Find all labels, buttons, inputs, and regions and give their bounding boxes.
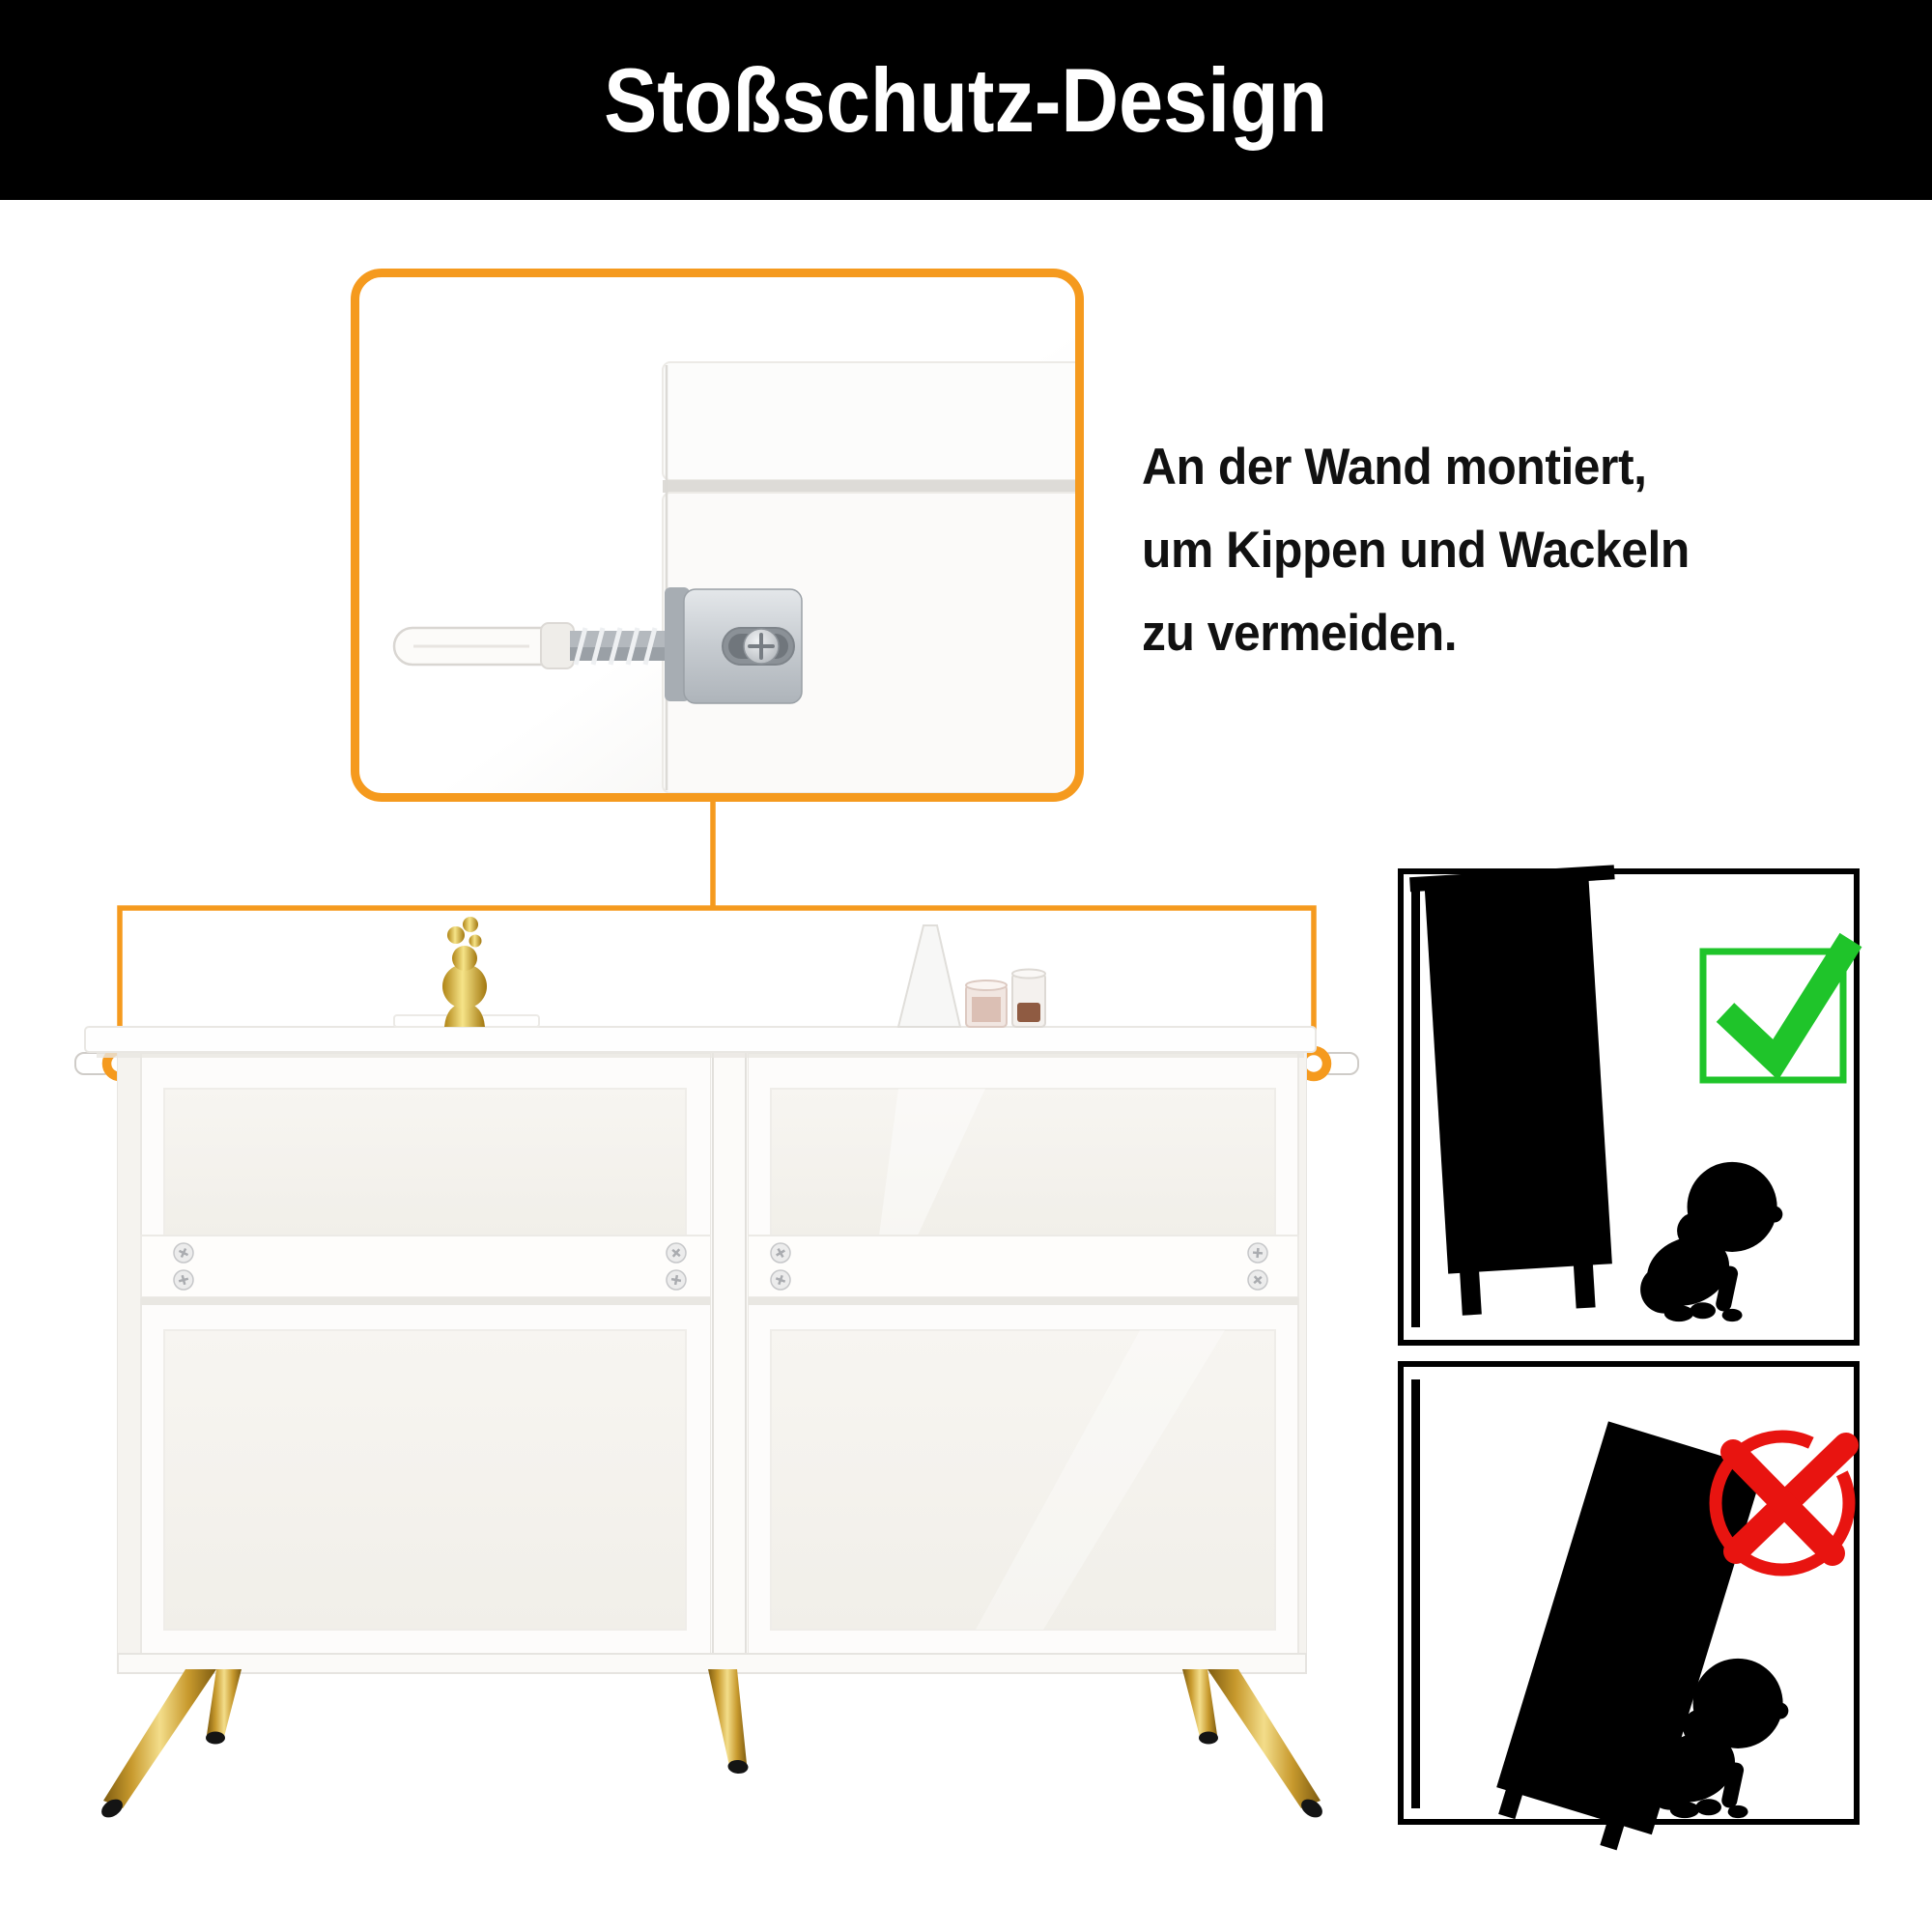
- connector-line: [120, 802, 1314, 1053]
- decor-vase: [898, 925, 960, 1027]
- diagram-incorrect: [1401, 1364, 1857, 1859]
- callout-box: [351, 269, 1084, 802]
- sideboard-illustration: [85, 917, 1325, 1821]
- decor-gold-figurine: [442, 917, 487, 1027]
- caption-line-2: um Kippen und Wackeln: [1142, 509, 1723, 592]
- caption-line-3: zu vermeiden.: [1142, 592, 1723, 675]
- diagram-correct: [1401, 865, 1857, 1343]
- wall-line: [1411, 887, 1420, 1327]
- leg-floor-caps: [99, 1732, 1326, 1822]
- anti-tip-rail-left: [141, 1236, 711, 1305]
- caption-line-1: An der Wand montiert,: [1142, 426, 1723, 509]
- anti-tip-rail-right: [748, 1236, 1298, 1305]
- decor-cups: [966, 970, 1045, 1028]
- cabinet-gold-legs: [103, 1669, 1321, 1808]
- cabinet-top-slab: [85, 1027, 1316, 1052]
- caption-text: An der Wand montiert, um Kippen und Wack…: [1142, 426, 1723, 675]
- wall-line: [1411, 1379, 1420, 1808]
- cabinet-center-stile: [711, 1053, 748, 1654]
- product-safety-infographic: Stoßschutz-Design: [0, 0, 1932, 1932]
